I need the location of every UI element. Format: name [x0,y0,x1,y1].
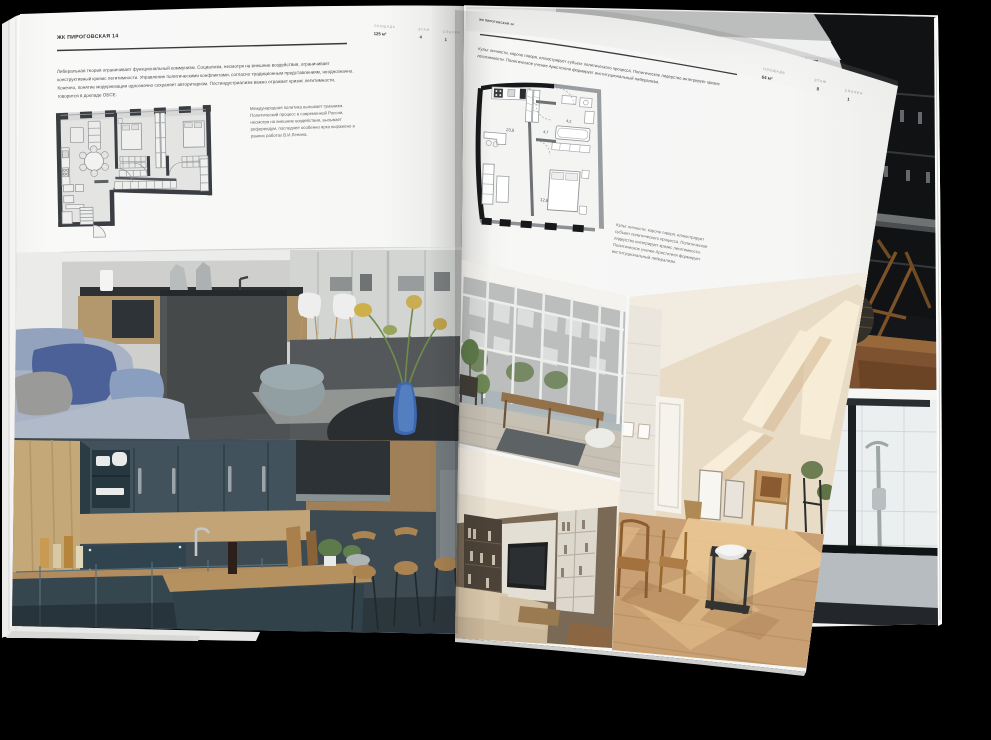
svg-text:ЭТАЖ: ЭТАЖ [418,27,430,32]
svg-text:4,2: 4,2 [566,119,572,124]
svg-text:12,8: 12,8 [540,197,549,203]
svg-text:23,5: 23,5 [506,127,515,133]
svg-text:4,7: 4,7 [543,130,549,135]
svg-text:125 м²: 125 м² [374,31,387,37]
